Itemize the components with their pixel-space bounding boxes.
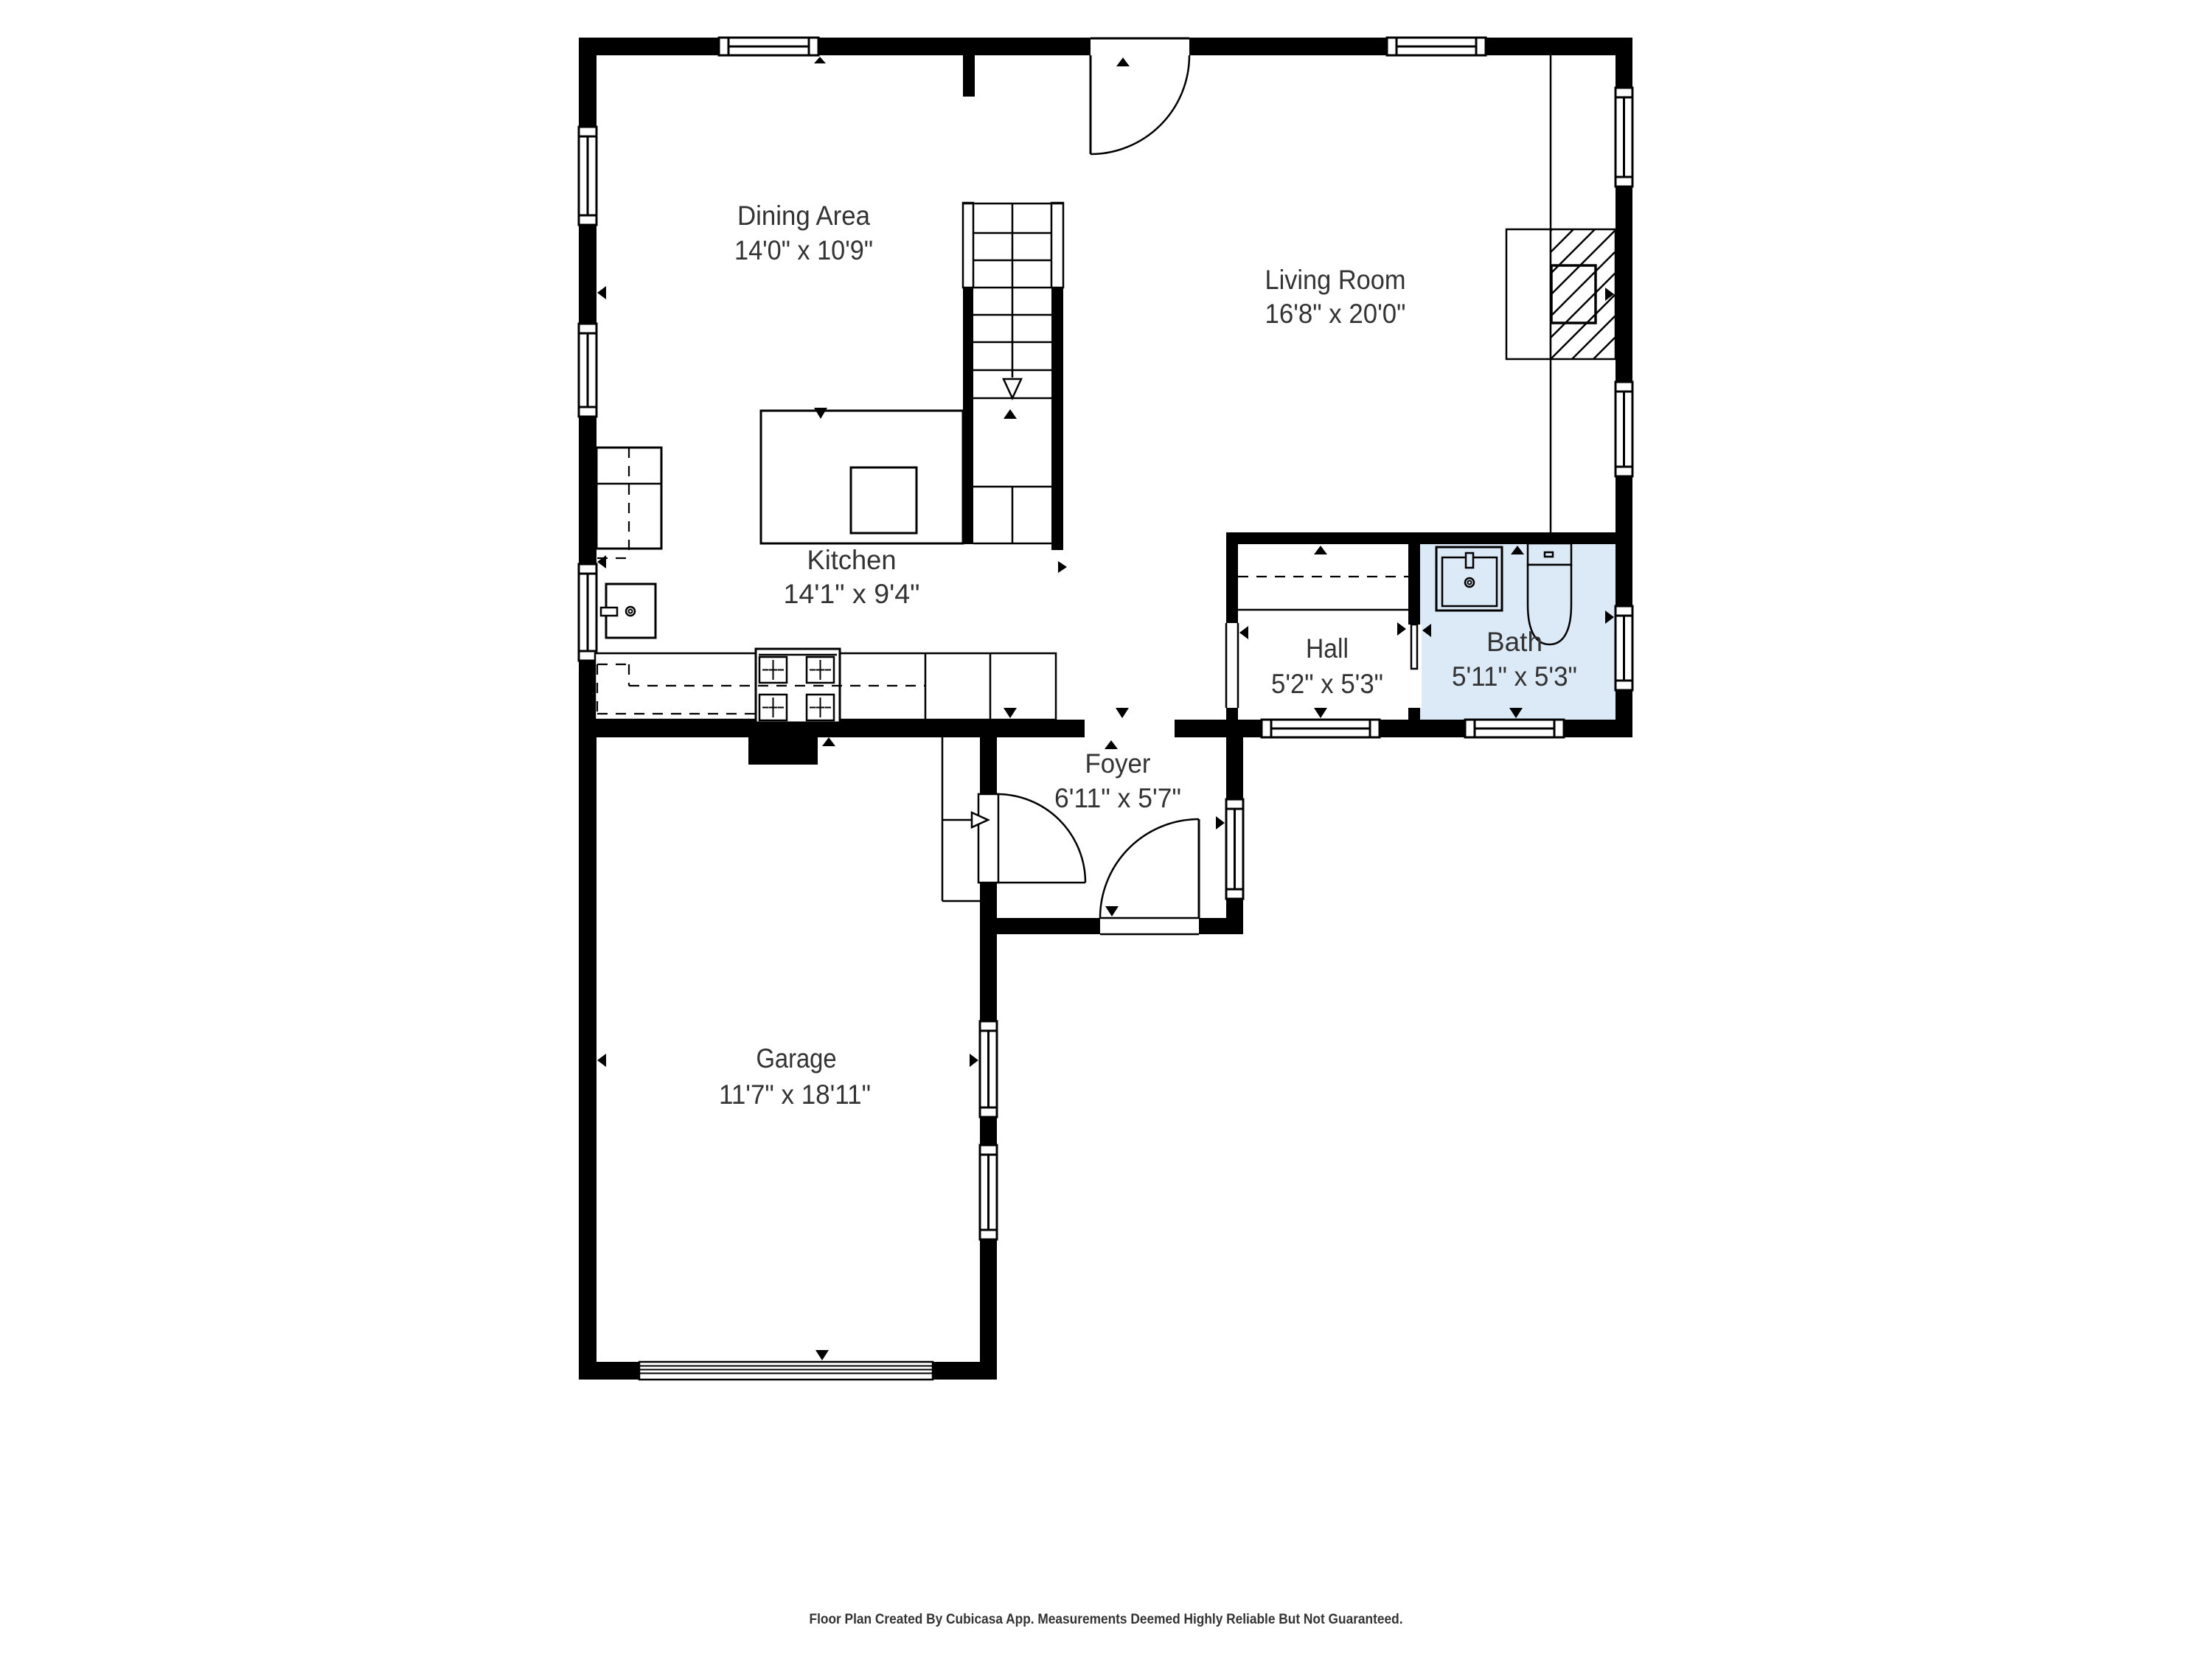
svg-text:6'11" x 5'7": 6'11" x 5'7": [1054, 783, 1181, 813]
svg-text:Kitchen: Kitchen: [807, 545, 897, 575]
svg-text:14'1" x 9'4": 14'1" x 9'4": [784, 579, 920, 609]
svg-text:Garage: Garage: [757, 1043, 837, 1074]
svg-text:16'8" x 20'0": 16'8" x 20'0": [1265, 299, 1406, 329]
svg-text:Living Room: Living Room: [1265, 265, 1406, 295]
svg-text:5'11" x 5'3": 5'11" x 5'3": [1452, 661, 1577, 692]
svg-text:5'2" x 5'3": 5'2" x 5'3": [1271, 669, 1383, 699]
svg-text:Bath: Bath: [1486, 627, 1543, 657]
svg-text:Hall: Hall: [1306, 633, 1349, 664]
svg-text:Dining Area: Dining Area: [737, 201, 870, 231]
svg-text:14'0" x 10'9": 14'0" x 10'9": [734, 235, 873, 265]
svg-text:11'7" x 18'11": 11'7" x 18'11": [719, 1079, 871, 1110]
svg-text:Foyer: Foyer: [1085, 748, 1151, 779]
svg-text:Floor Plan Created By Cubicasa: Floor Plan Created By Cubicasa App. Meas…: [810, 1612, 1403, 1627]
